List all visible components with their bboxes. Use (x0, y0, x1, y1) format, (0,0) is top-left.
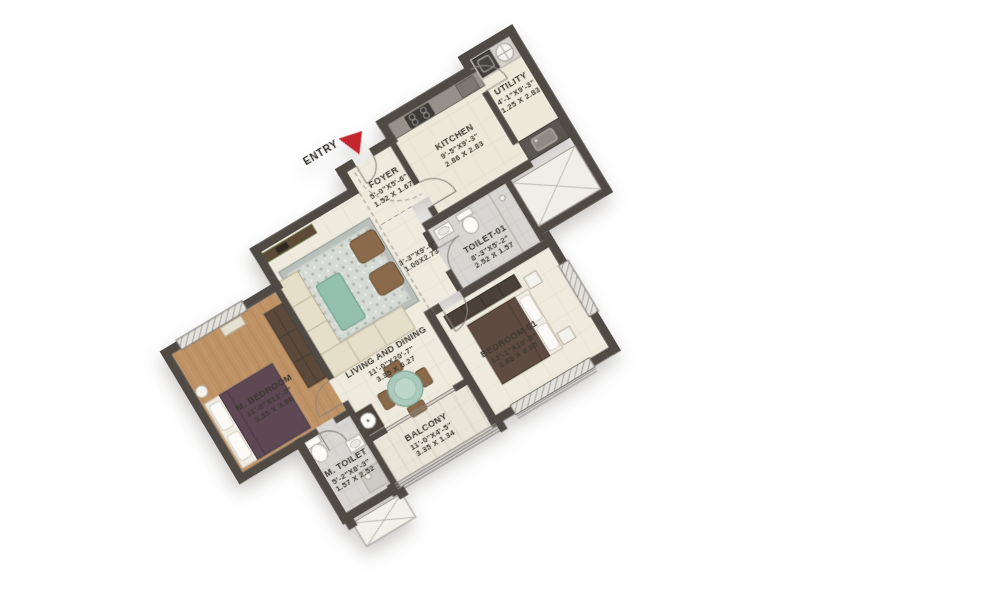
floor-plan-canvas: M. BEDROOM 11'-0"X13'-0" 3.35 X 3.96 M. … (0, 0, 1000, 600)
entry-arrow-icon (339, 126, 372, 159)
rotated-plan-group: M. BEDROOM 11'-0"X13'-0" 3.35 X 3.96 M. … (109, 24, 705, 586)
entry-label: ENTRY (302, 138, 340, 167)
floor-plan: M. BEDROOM 11'-0"X13'-0" 3.35 X 3.96 M. … (0, 0, 1000, 600)
